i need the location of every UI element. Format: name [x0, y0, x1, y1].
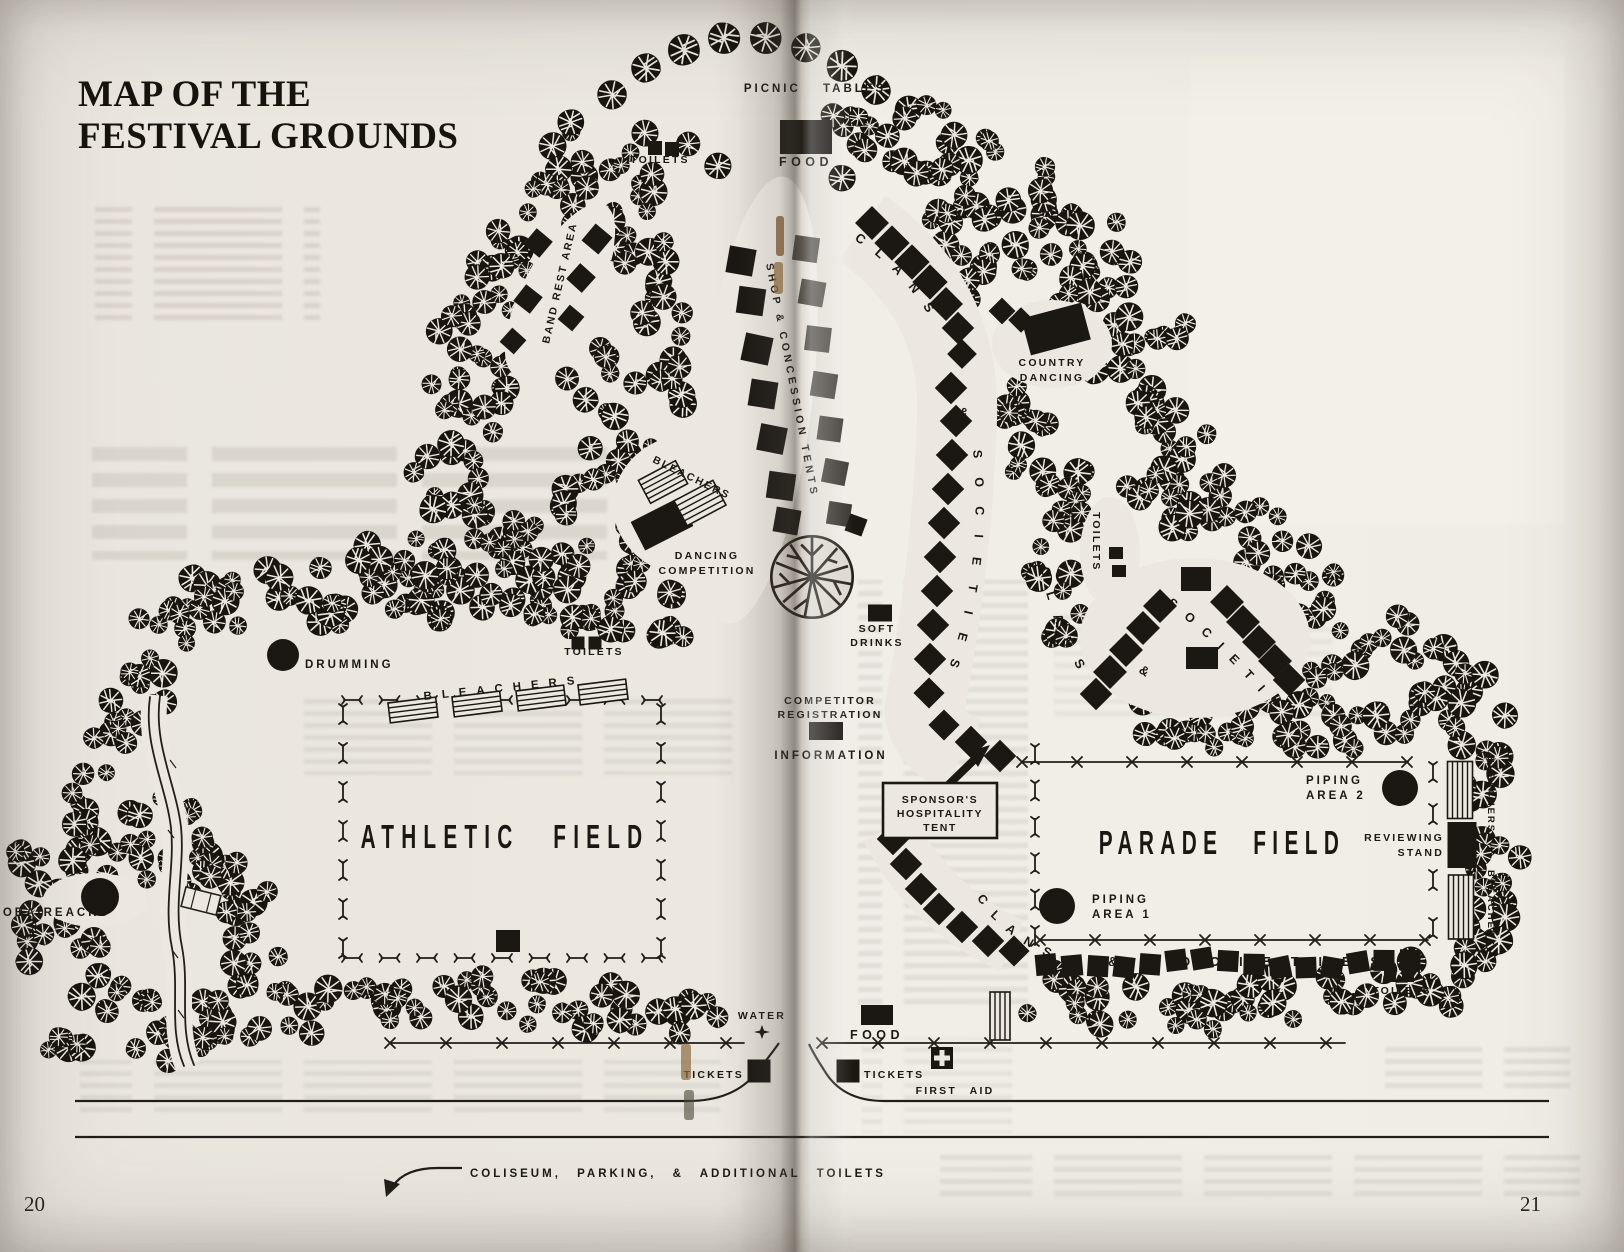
- map-title-line2: FESTIVAL GROUNDS: [78, 116, 459, 158]
- coliseum-arrow: [393, 1168, 462, 1186]
- bridge: [181, 887, 221, 915]
- tape-artifact: [681, 1044, 691, 1080]
- piobaireachd-label: PIOBAIREACHD: [0, 907, 111, 919]
- drumming-marker: [267, 639, 299, 671]
- drumming-label: DRUMMING: [305, 659, 394, 671]
- map-title: MAP OF THE FESTIVAL GROUNDS: [78, 74, 459, 158]
- tape-artifact: [684, 1090, 694, 1120]
- societies-label-bottom: SOCIETIES: [1152, 955, 1399, 969]
- tape-artifact: [776, 216, 784, 256]
- water-icon: [754, 1025, 770, 1039]
- dancing-competition-label-2: COMPETITION: [658, 565, 755, 577]
- piping-area-2-label-1: PIPING: [1306, 775, 1363, 787]
- athletic-field-label: ATHLETIC FIELD: [361, 818, 650, 855]
- coliseum-note-label: COLISEUM, PARKING, & ADDITIONAL TOILETS: [470, 1168, 886, 1180]
- reviewing-stand-label-2: STAND: [1398, 847, 1444, 859]
- soft-drinks-label-2: DRINKS: [850, 637, 903, 649]
- picnic-tables-label: PICNIC TABLES: [744, 83, 886, 95]
- page-number-left: 20: [24, 1192, 45, 1217]
- dancing-competition-label-1: DANCING: [675, 550, 739, 562]
- piping-area-1-marker: [1039, 888, 1075, 924]
- page-number-right: 21: [1520, 1192, 1541, 1217]
- toilets-mid-label: TOILETS: [564, 646, 624, 658]
- reviewing-stand-label-1: REVIEWING: [1364, 832, 1444, 844]
- tickets-right-label: TICKETS: [864, 1069, 924, 1081]
- piping-area-2-marker: [1382, 770, 1418, 806]
- sponsors-tent-label-1: SPONSOR'S: [902, 794, 978, 806]
- information-label: INFORMATION: [774, 750, 887, 762]
- competitor-registration-label-2: REGISTRATION: [778, 709, 883, 721]
- food-top-label: FOOD: [779, 155, 833, 169]
- sponsors-tent-label-3: TENT: [923, 822, 957, 834]
- toilets-bottomright-label: TOILETS: [1372, 985, 1432, 997]
- toilets-top-label: TOILETS: [630, 154, 690, 166]
- toilets-vertical-label: TOILETS: [1090, 512, 1102, 572]
- first-aid-icon: [931, 1047, 953, 1069]
- map-title-line1: MAP OF THE: [78, 74, 459, 116]
- bleachers-vertical-label-2: BLEACHERS: [1485, 870, 1496, 947]
- large-tree: [771, 536, 854, 619]
- piping-area-1-label-1: PIPING: [1092, 894, 1149, 906]
- bleachers-vertical-label-1: BLEACHERS: [1485, 756, 1496, 833]
- sponsors-tent-label-2: HOSPITALITY: [897, 808, 983, 820]
- competitor-registration-label-1: COMPETITOR: [784, 695, 876, 707]
- parade-field-label: PARADE FIELD: [1099, 824, 1346, 861]
- program-spread: MAP OF THE FESTIVAL GROUNDS: [0, 0, 1624, 1252]
- country-dancing-label-2: DANCING: [1020, 372, 1084, 384]
- country-dancing-label-1: COUNTRY: [1019, 357, 1086, 369]
- piping-area-1-label-2: AREA 1: [1092, 909, 1152, 921]
- ampersand-bottom: &: [1108, 954, 1117, 969]
- tape-artifact: [774, 262, 783, 294]
- festival-grounds-map: PICNIC TABLES TOILETS FOOD BAND REST ARE…: [0, 0, 1624, 1252]
- first-aid-label: FIRST AID: [916, 1085, 995, 1097]
- piping-area-2-label-2: AREA 2: [1306, 790, 1366, 802]
- soft-drinks-label-1: SOFT: [859, 623, 896, 635]
- food-bottom-label: FOOD: [850, 1028, 904, 1042]
- tickets-left-label: TICKETS: [684, 1069, 744, 1081]
- water-label: WATER: [738, 1010, 786, 1022]
